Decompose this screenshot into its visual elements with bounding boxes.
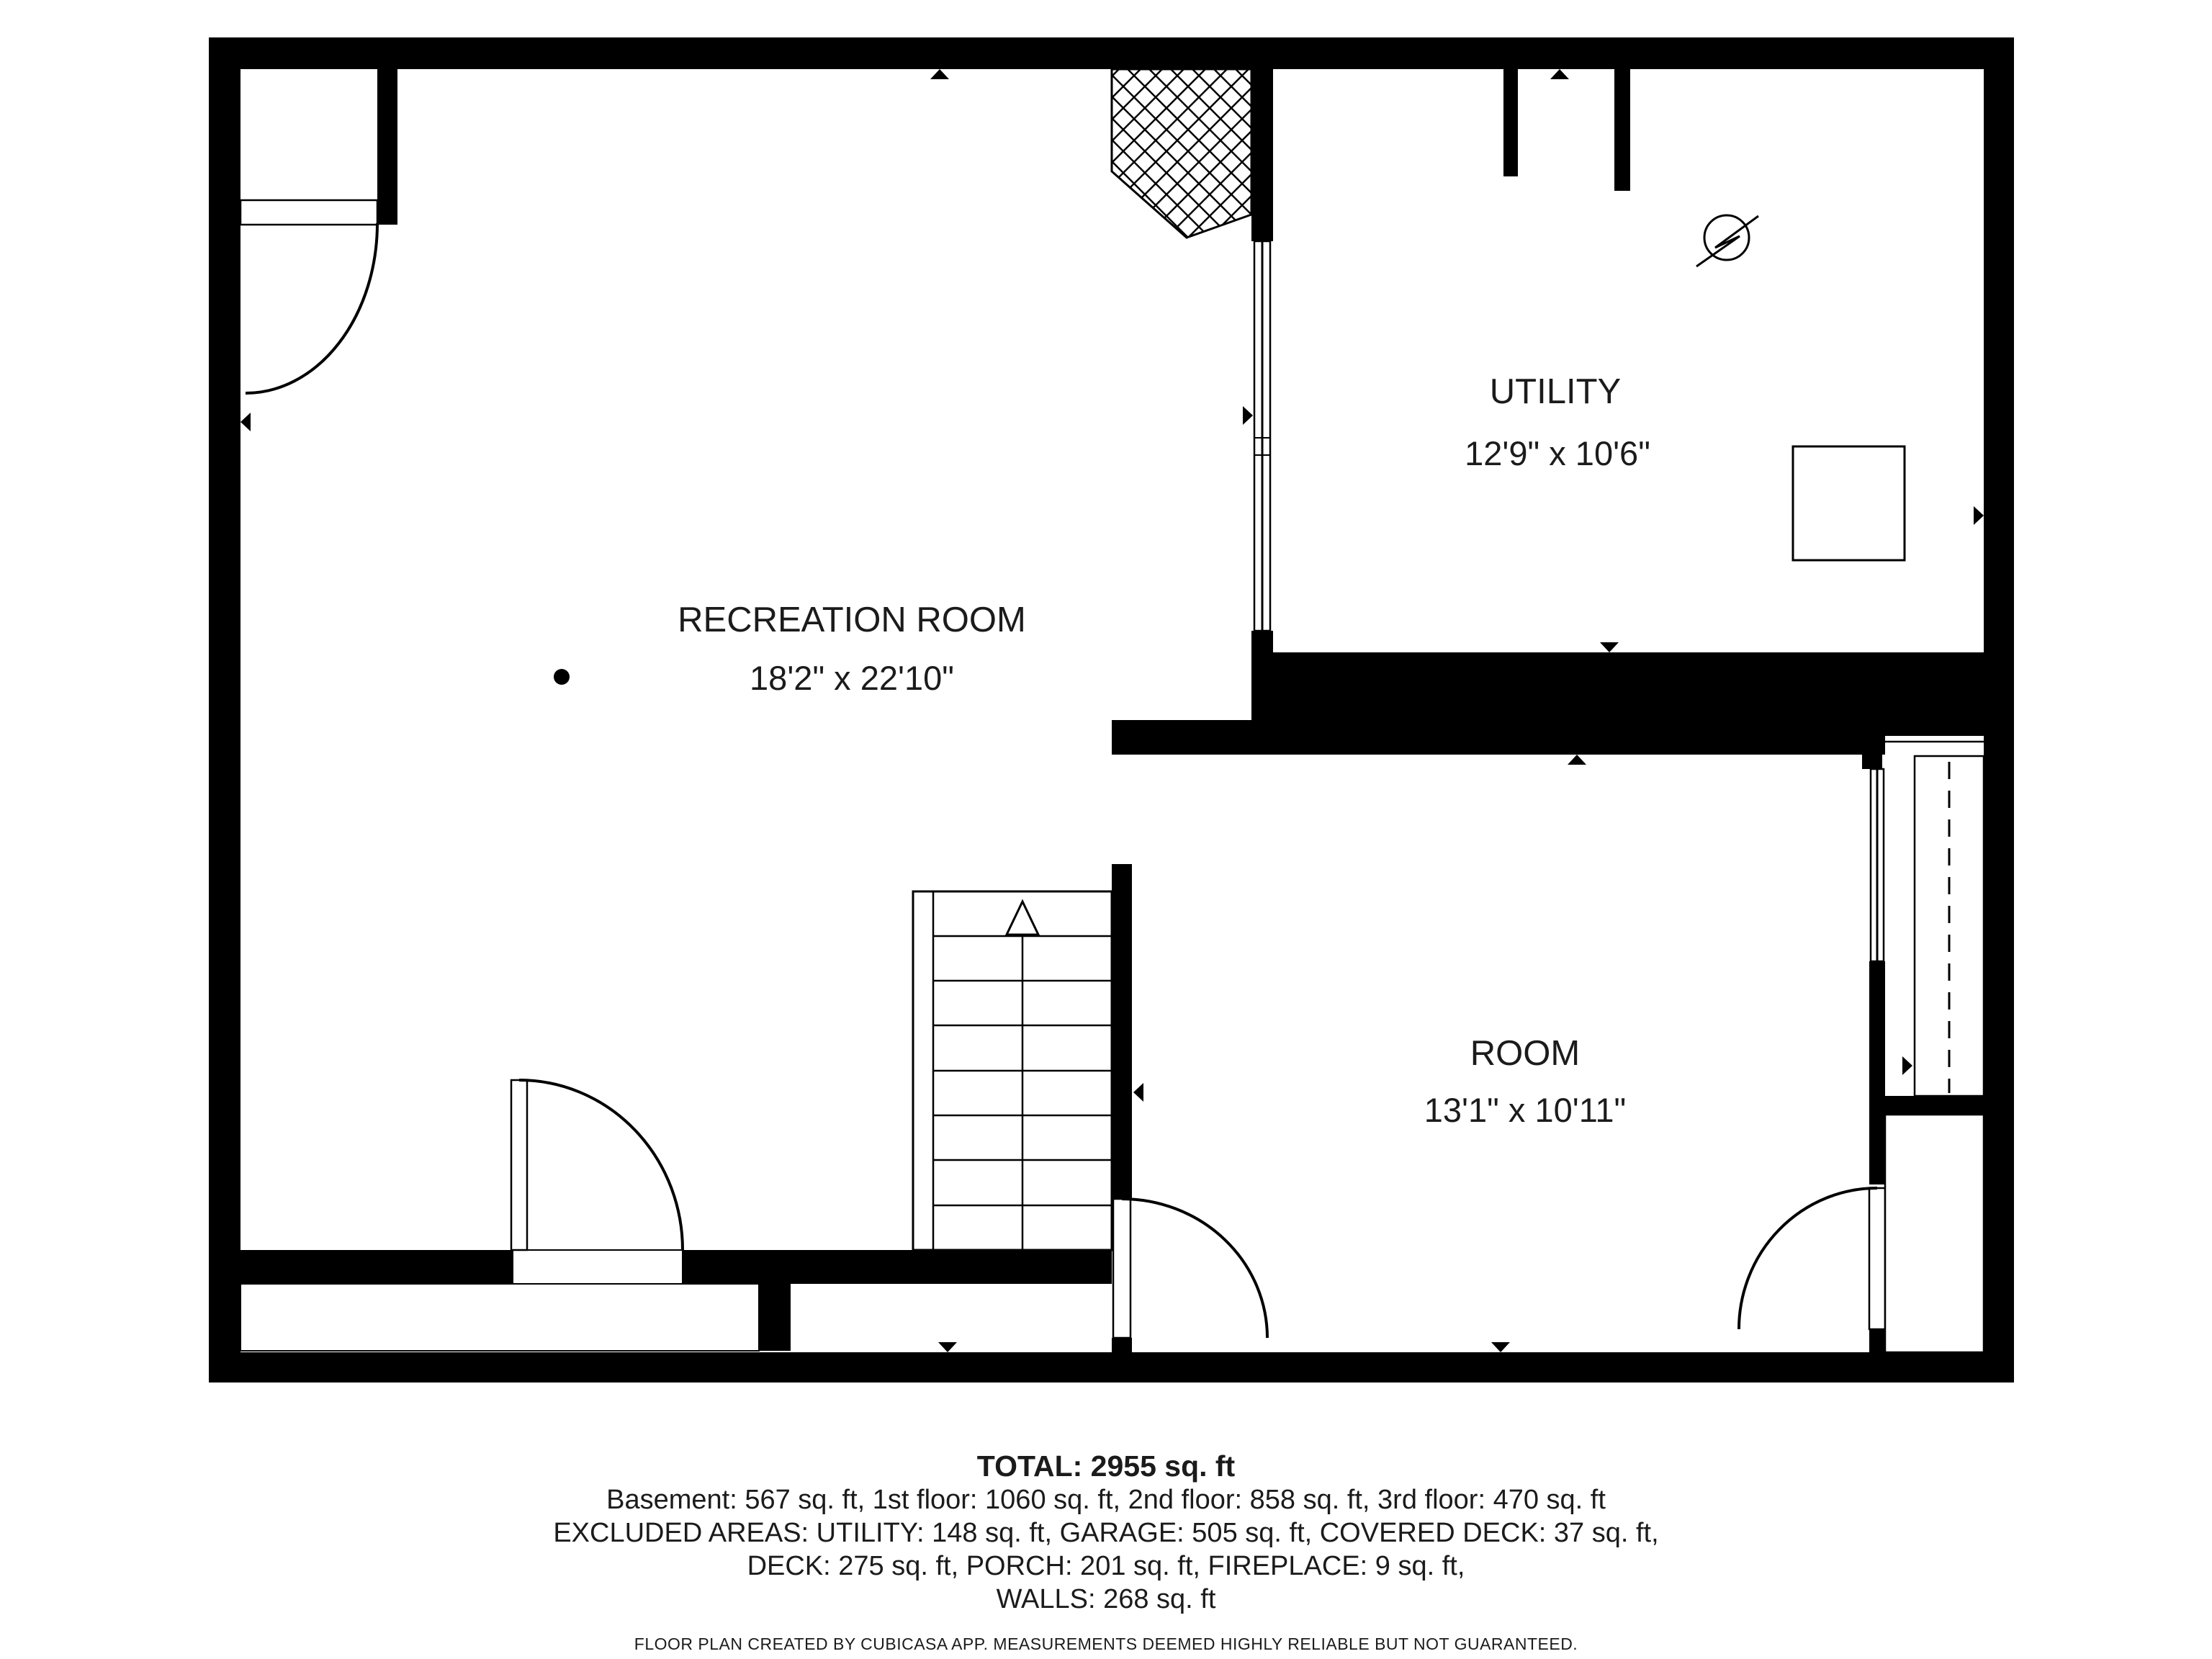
rec-bottom-wall-left — [240, 1250, 513, 1284]
electric-meter-icon — [1696, 215, 1758, 266]
room-left-wall-stub — [1112, 1338, 1132, 1352]
marker-room-left-icon — [1133, 1083, 1143, 1102]
bumpout-right-wall — [759, 1250, 791, 1351]
stairs-room-wall — [1112, 864, 1132, 1199]
room-right-wall-stub — [1869, 1329, 1885, 1352]
marker-bottom-rec-icon — [938, 1342, 957, 1352]
utility-label: UTILITY — [1490, 372, 1621, 411]
door-arc — [1122, 1199, 1267, 1338]
interior-walls — [240, 69, 2014, 1352]
marker-top-utility-icon — [1550, 69, 1569, 79]
utility-wall-stub-a — [1503, 69, 1518, 176]
total-area: TOTAL: 2955 sq. ft — [0, 1449, 2212, 1483]
window-room-right — [1871, 769, 1884, 961]
bumpout-interior — [240, 1284, 759, 1351]
rec-bottom-wall-right — [683, 1250, 1112, 1284]
rec-utility-wall-stub — [1251, 631, 1273, 652]
utility-wall-stub-b — [1614, 69, 1630, 191]
marker-bottom-room-icon — [1491, 1342, 1510, 1352]
floorplan-page: { "plan": { "rooms": [ { "name": "RECREA… — [0, 0, 2212, 1659]
bay-top-stub — [1862, 736, 1882, 769]
floor-areas: Basement: 567 sq. ft, 1st floor: 1060 sq… — [0, 1483, 2212, 1516]
wall-bottom — [209, 1352, 2014, 1382]
room-dims: 13'1" x 10'11" — [1424, 1091, 1626, 1129]
stairs — [913, 891, 1112, 1250]
camera-point-dot — [554, 669, 570, 685]
marker-left-wall-icon — [240, 413, 251, 431]
wall-left — [209, 37, 240, 1382]
room-right-wall-mid — [1869, 961, 1885, 1184]
rec-utility-wall-top — [1251, 69, 1273, 241]
door-room-right — [1739, 1188, 1885, 1329]
utility-dims: 12'9" x 10'6" — [1465, 434, 1650, 472]
marker-utility-right-icon — [1974, 506, 1984, 525]
nook-right-wall — [377, 69, 397, 225]
area-summary: TOTAL: 2955 sq. ft Basement: 567 sq. ft,… — [0, 1449, 2212, 1616]
bay-bottom-wall — [1885, 1096, 1984, 1115]
window-rec-utility — [1254, 241, 1270, 631]
excluded-areas-2: DECK: 275 sq. ft, PORCH: 201 sq. ft, FIR… — [0, 1550, 2212, 1583]
marker-room-bay-icon — [1902, 1056, 1912, 1075]
marker-room-top-icon — [1568, 755, 1586, 765]
door-rec-bottom — [511, 1080, 683, 1284]
door-room-left — [1113, 1199, 1267, 1338]
closet-box — [1885, 1115, 1984, 1352]
floor-plan: RECREATION ROOM 18'2" x 22'10" UTILITY 1… — [0, 0, 2212, 1447]
recreation-room-label: RECREATION ROOM — [678, 601, 1026, 639]
marker-utility-bottom-icon — [1600, 642, 1619, 652]
room-label: ROOM — [1470, 1034, 1580, 1073]
excluded-areas-1: EXCLUDED AREAS: UTILITY: 148 sq. ft, GAR… — [0, 1516, 2212, 1550]
water-heater-box — [1793, 446, 1905, 560]
disclaimer: FLOOR PLAN CREATED BY CUBICASA APP. MEAS… — [0, 1635, 2212, 1654]
room-right-bay — [1885, 742, 1984, 1352]
door-nook — [240, 200, 377, 393]
excluded-areas-3: WALLS: 268 sq. ft — [0, 1583, 2212, 1616]
recreation-room-dims: 18'2" x 22'10" — [750, 659, 954, 697]
fireplace — [1112, 69, 1251, 238]
fireplace-hatch — [1112, 69, 1251, 238]
room-top-wall — [1112, 720, 1885, 755]
door-arc — [1739, 1188, 1877, 1329]
door-arc — [246, 223, 377, 393]
door-arc — [519, 1080, 683, 1250]
utility-fixtures — [1696, 215, 1905, 560]
windows — [1254, 241, 1884, 961]
marker-rec-window-icon — [1243, 406, 1253, 425]
marker-top-rec-icon — [930, 69, 949, 79]
wall-top — [209, 37, 2014, 69]
